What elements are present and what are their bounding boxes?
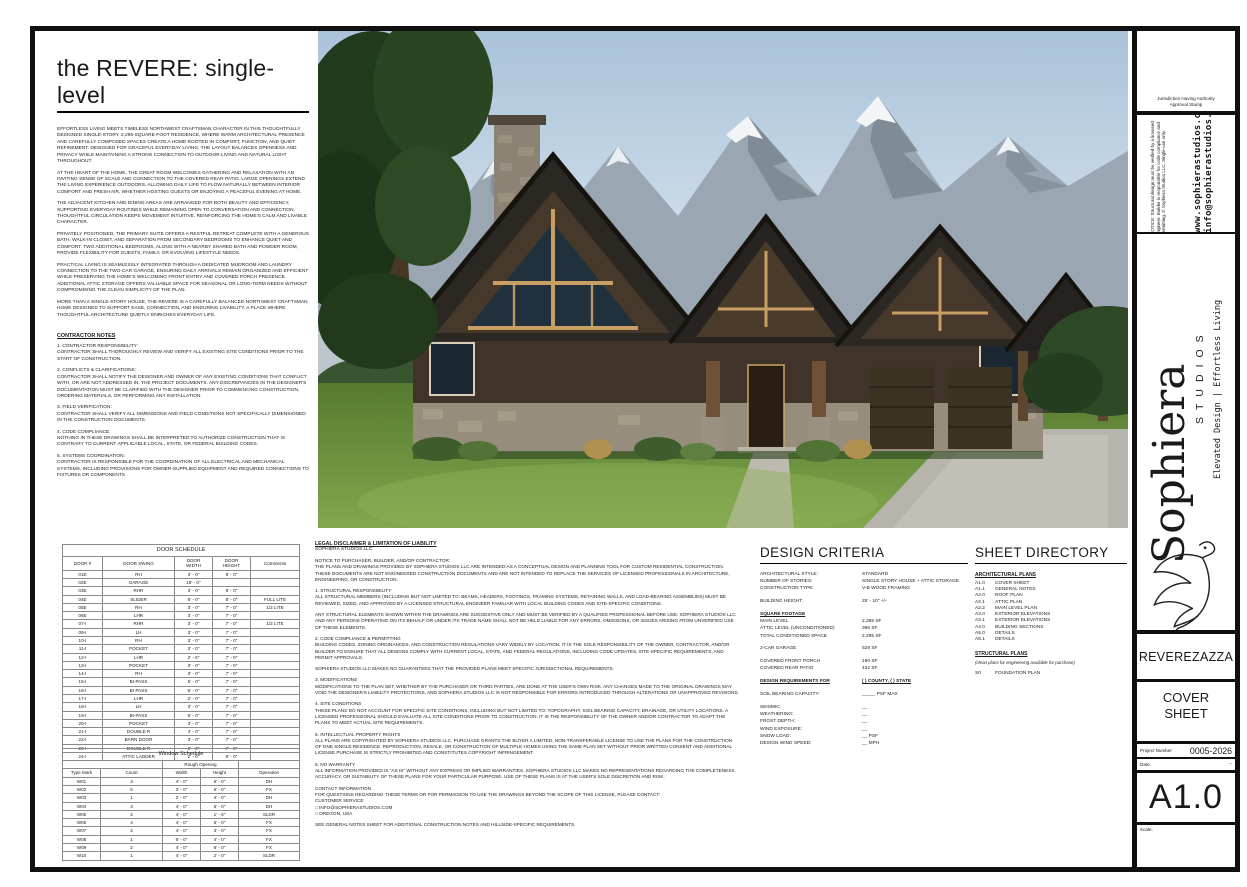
table-cell: 15-I — [63, 678, 103, 686]
sheet-label: DETAILS — [995, 637, 1015, 643]
table-cell: DOUBLE R — [103, 728, 175, 736]
criteria-row: WIND EXPOSURE:__ — [760, 727, 968, 733]
table-cell — [251, 686, 300, 694]
sophiera-bird-logo — [1141, 536, 1233, 632]
architectural-plans-heading: ARCHITECTURAL PLANS — [975, 572, 1127, 578]
criteria-row — [760, 641, 968, 646]
table-cell: 1 — [101, 794, 163, 802]
paragraph: CONTACT INFORMATION FOR QUESTIONS REGARD… — [315, 786, 739, 817]
criteria-value: V-B WOOD FRAMING — [862, 586, 968, 592]
criteria-label: COVERED REAR PATIO — [760, 666, 862, 672]
criteria-row — [760, 674, 968, 679]
criteria-label: CONSTRUCTION TYPE: — [760, 586, 862, 592]
table-cell: 2' - 0" — [175, 694, 213, 702]
table-cell: SLDR — [239, 852, 300, 860]
table-row: 04ESLIDER8' - 0"8' - 0"FULL LITE — [63, 595, 300, 603]
table-cell: 7' - 0" — [213, 603, 251, 611]
table-cell: 3' - 0" — [175, 703, 213, 711]
table-cell: 2' - 0" — [201, 852, 239, 860]
table-cell — [251, 570, 300, 578]
table-cell: 09-I — [63, 628, 103, 636]
table-cell: 4' - 0" — [163, 802, 201, 810]
approval-stamp-box: Jurisdiction Having Authority Approval S… — [1137, 31, 1235, 115]
table-cell: W01 — [63, 777, 101, 785]
project-number-label: Project Number — [1140, 748, 1172, 753]
table-cell: 8' - 0" — [175, 595, 213, 603]
table-cell — [251, 612, 300, 620]
table-cell: SLIDER — [103, 595, 175, 603]
website-url: www.sophierastudios.com — [1193, 115, 1204, 233]
table-cell — [251, 587, 300, 595]
table-row: 18-ILH3' - 0"7' - 0" — [63, 703, 300, 711]
column-header: DOOR WIDTH — [175, 557, 213, 571]
criteria-row: SOIL BEARING CAPACITY:_____ PSF MAX — [760, 692, 968, 698]
table-row: 06ELHR3' - 0"7' - 0" — [63, 612, 300, 620]
window-schedule-title: Window Schedule — [63, 749, 300, 761]
table-cell: 4' - 0" — [163, 827, 201, 835]
scale-label: Scale: — [1140, 827, 1153, 832]
table-cell: 8' - 0" — [213, 587, 251, 595]
table-cell: 22-I — [63, 736, 103, 744]
column-header: Type Mark — [63, 769, 101, 777]
table-cell: 7' - 0" — [213, 736, 251, 744]
criteria-row: CONSTRUCTION TYPE:V-B WOOD FRAMING — [760, 586, 968, 592]
criteria-row — [760, 594, 968, 599]
table-cell: 01E — [63, 570, 103, 578]
table-cell: DH — [239, 794, 300, 802]
notice-box: NOTICE: Structural design must be verifi… — [1137, 115, 1235, 234]
criteria-label — [760, 699, 862, 704]
table-cell — [251, 694, 300, 702]
paragraph: 5. INTELLECTUAL PROPERTY RIGHTS ALL PLAN… — [315, 732, 739, 757]
criteria-row: ARCHITECTURAL STYLE:STANDARD — [760, 572, 968, 578]
table-cell: 6' - 0" — [175, 686, 213, 694]
criteria-value: __ MPH — [862, 741, 968, 747]
table-cell: 1 — [101, 835, 163, 843]
table-cell: 19-I — [63, 711, 103, 719]
paragraph: SEE GENERAL NOTES SHEET FOR ADDITIONAL C… — [315, 822, 739, 828]
criteria-label — [760, 606, 862, 611]
table-row: 13-IPOCKET3' - 0"7' - 0" — [63, 661, 300, 669]
criteria-value: __ — [862, 712, 968, 718]
design-criteria-rows: ARCHITECTURAL STYLE:STANDARDNUMBER OF ST… — [760, 572, 968, 747]
criteria-label: DESIGN REQUIREMENTS FOR — [760, 679, 862, 685]
date-label: Date: — [1140, 762, 1151, 767]
criteria-label: ARCHITECTURAL STYLE: — [760, 572, 862, 578]
table-row: 17-ILHR2' - 0"7' - 0" — [63, 694, 300, 702]
paragraph: 3. MODIFICATIONS MODIFICATIONS TO THE PL… — [315, 677, 739, 696]
table-cell: FULL LITE — [251, 595, 300, 603]
blank-header — [63, 761, 163, 769]
table-cell: 7' - 0" — [213, 728, 251, 736]
table-cell: 04E — [63, 595, 103, 603]
criteria-label: ATTIC LEVEL (UNCONDITIONED) — [760, 626, 862, 632]
criteria-label: 2-CAR GARAGE — [760, 646, 862, 652]
table-cell: 3' - 0" — [175, 612, 213, 620]
drawing-area: the REVERE: single-level EFFORTLESS LIVI… — [35, 31, 1132, 867]
table-cell: 4' - 0" — [163, 819, 201, 827]
table-cell: 18' - 0" — [175, 579, 213, 587]
criteria-row — [760, 606, 968, 611]
table-cell: 7' - 0" — [213, 653, 251, 661]
table-cell: 7' - 0" — [213, 711, 251, 719]
table-cell: 2 — [101, 844, 163, 852]
sheet-title-box: COVER SHEET — [1137, 682, 1235, 744]
sheet-number-box: A1.0 — [1137, 773, 1235, 825]
criteria-label: SEISMIC: — [760, 705, 862, 711]
criteria-label: SNOW LOAD: — [760, 734, 862, 740]
column-header: Operation — [239, 769, 300, 777]
table-cell: 3' - 0" — [175, 661, 213, 669]
table-cell: 8' - 0" — [213, 595, 251, 603]
criteria-row: SEISMIC:__ — [760, 705, 968, 711]
table-cell: 02E — [63, 579, 103, 587]
table-cell: 3' - 0" — [163, 786, 201, 794]
table-cell: LHR — [103, 612, 175, 620]
criteria-label: DESIGN WIND SPEED: — [760, 741, 862, 747]
legal-paragraphs: NOTICE TO PURCHASER, BUILDER, AND/OR CON… — [315, 558, 739, 828]
table-cell: 2 — [101, 810, 163, 818]
table-cell: 4' - 0" — [163, 844, 201, 852]
window-schedule: Window Schedule Rough Opening Type Mark … — [62, 748, 299, 861]
criteria-value — [862, 612, 968, 618]
table-cell: FX — [239, 835, 300, 843]
criteria-value — [862, 641, 968, 646]
table-cell: 3' - 0" — [175, 736, 213, 744]
table-cell — [251, 670, 300, 678]
table-cell: 5' - 0" — [175, 711, 213, 719]
table-cell: LH — [103, 703, 175, 711]
table-cell: 4' - 0" — [163, 852, 201, 860]
paragraph: 2. CONFLICTS & CLARIFICATIONS: CONTRACTO… — [57, 368, 309, 400]
criteria-value: STANDARD — [862, 572, 968, 578]
table-cell: DH — [239, 777, 300, 785]
brand-name: Sophiera — [1148, 364, 1198, 564]
legal-subheading: SOPHIERA STUDIOS LLC — [315, 547, 739, 552]
table-cell: 5' - 0" — [175, 678, 213, 686]
table-row: 14-IRH3' - 0"7' - 0" — [63, 670, 300, 678]
paragraph: AT THE HEART OF THE HOME, THE GREAT ROOM… — [57, 171, 309, 197]
table-cell: 4' - 0" — [163, 777, 201, 785]
table-row: 20-IPOCKET3' - 0"7' - 0" — [63, 719, 300, 727]
approval-stamp-label: Jurisdiction Having Authority Approval S… — [1137, 96, 1235, 108]
cover-sheet-page: the REVERE: single-level EFFORTLESS LIVI… — [0, 0, 1247, 887]
table-cell: 2 — [101, 827, 163, 835]
column-header: Comments — [251, 557, 300, 571]
table-row: W0312' - 0"4' - 0"DH — [63, 794, 300, 802]
table-cell: W10 — [63, 852, 101, 860]
table-cell: 3' - 0" — [175, 587, 213, 595]
table-cell — [213, 579, 251, 587]
table-cell — [251, 736, 300, 744]
sheet-directory-item: S0FOUNDATION PLAN — [975, 671, 1127, 677]
project-number-row: Project Number 0005-2026 — [1137, 744, 1235, 759]
criteria-row — [760, 687, 968, 692]
table-cell: POCKET — [103, 645, 175, 653]
table-row: 11-IPOCKET3' - 0"7' - 0" — [63, 645, 300, 653]
table-cell: RHR — [103, 587, 175, 595]
table-cell: 7' - 0" — [213, 686, 251, 694]
criteria-value: 25' - 10" +/- — [862, 599, 968, 605]
table-row: W0134' - 0"5' - 0"DH — [63, 777, 300, 785]
criteria-row: COVERED FRONT PORCH190 SF — [760, 659, 968, 665]
table-cell: 14-I — [63, 670, 103, 678]
front-door — [748, 365, 784, 449]
criteria-value — [862, 674, 968, 679]
table-cell: 06E — [63, 612, 103, 620]
criteria-row: FROST DEPTH:__ — [760, 719, 968, 725]
sheet-directory: SHEET DIRECTORY ARCHITECTURAL PLANS A1.0… — [975, 545, 1127, 678]
table-row: 10-IRH3' - 0"7' - 0" — [63, 637, 300, 645]
criteria-row: BUILDING HEIGHT:25' - 10" +/- — [760, 599, 968, 605]
paragraph: MORE THAN A SINGLE-STORY HOUSE, THE REVE… — [57, 300, 309, 319]
contractor-notes: 1. CONTRACTOR RESPONSIBILITY: CONTRACTOR… — [57, 344, 309, 480]
paragraph: PRIVATELY POSITIONED, THE PRIMARY SUITE … — [57, 232, 309, 258]
table-cell: 4' - 0" — [201, 794, 239, 802]
sheet-directory-item: A5.1DETAILS — [975, 637, 1127, 643]
criteria-label — [760, 654, 862, 659]
brand-studios-label: STUDIOS — [1194, 274, 1208, 424]
table-cell: 4 — [101, 819, 163, 827]
table-row: W0924' - 0"6' - 0"FX — [63, 844, 300, 852]
table-cell: FX — [239, 786, 300, 794]
table-cell: RHR — [103, 620, 175, 628]
table-cell — [251, 719, 300, 727]
criteria-row: DESIGN REQUIREMENTS FOR( ) COUNTY, ( ) S… — [760, 679, 968, 685]
criteria-value: 190 SF — [862, 659, 968, 665]
criteria-row: MAIN LEVEL2,295 SF — [760, 619, 968, 625]
column-header: Height — [201, 769, 239, 777]
plan-title: the REVERE: single-level — [57, 55, 309, 113]
table-cell: W02 — [63, 786, 101, 794]
paragraph: ANY STRUCTURAL ELEMENTS SHOWN WITHIN THE… — [315, 612, 739, 631]
table-cell: 7' - 0" — [213, 694, 251, 702]
table-cell: 20-I — [63, 719, 103, 727]
paragraph: PRACTICAL LIVING IS SEAMLESSLY INTEGRATE… — [57, 263, 309, 295]
column-header: Width — [163, 769, 201, 777]
date-value: -- — [1151, 762, 1232, 767]
table-row: W0816' - 0"4' - 0"FX — [63, 835, 300, 843]
criteria-value: 528 SF — [862, 646, 968, 652]
table-row: 03ERHR3' - 0"8' - 0" — [63, 587, 300, 595]
table-cell: W08 — [63, 835, 101, 843]
table-cell: 5' - 0" — [201, 786, 239, 794]
criteria-value — [862, 606, 968, 611]
table-cell: 8' - 0" — [213, 570, 251, 578]
table-cell — [251, 703, 300, 711]
table-cell: SLDR — [239, 810, 300, 818]
criteria-value: __ — [862, 705, 968, 711]
architectural-plans-list: A1.0COVER SHEETA1.1GENERAL NOTESA2.0ROOF… — [975, 581, 1127, 643]
garage-door — [948, 367, 1012, 449]
paragraph: 4. SITE CONDITIONS THESE PLANS DO NOT AC… — [315, 701, 739, 726]
criteria-label — [760, 674, 862, 679]
criteria-row: WEATHERING:__ — [760, 712, 968, 718]
project-name: REVEREZAZZA — [1139, 650, 1233, 664]
brand-tagline: Elevated Design | Effortless Living — [1213, 289, 1225, 479]
email-address: info@sophierastudios.com — [1204, 115, 1215, 233]
table-cell: 1/2 LITE — [251, 620, 300, 628]
criteria-value — [862, 699, 968, 704]
table-cell: 03E — [63, 587, 103, 595]
criteria-row: COVERED REAR PATIO432 SF — [760, 666, 968, 672]
project-number-value: 0005-2026 — [1172, 746, 1232, 756]
paragraph: 1. CONTRACTOR RESPONSIBILITY: CONTRACTOR… — [57, 344, 309, 363]
structural-plans-list: S0FOUNDATION PLAN — [975, 671, 1127, 677]
criteria-value: 395 SF — [862, 626, 968, 632]
table-cell: 7' - 0" — [213, 612, 251, 620]
table-row: W0644' - 0"6' - 0"FX — [63, 819, 300, 827]
criteria-row: TOTAL CONDITIONED SPACE2,295 SF — [760, 634, 968, 640]
table-cell: RH — [103, 570, 175, 578]
table-cell — [251, 637, 300, 645]
criteria-row — [760, 654, 968, 659]
criteria-label: WEATHERING: — [760, 712, 862, 718]
table-cell: 7' - 0" — [213, 661, 251, 669]
table-cell: 3' - 0" — [175, 670, 213, 678]
brand-box: Sophiera STUDIOS Elevated Design | Effor… — [1137, 234, 1235, 634]
table-cell: 13-I — [63, 661, 103, 669]
criteria-value — [862, 594, 968, 599]
table-cell: 3' - 0" — [175, 628, 213, 636]
paragraph: EFFORTLESS LIVING MEETS TIMELESS NORTHWE… — [57, 127, 309, 166]
criteria-value: 432 SF — [862, 666, 968, 672]
table-cell — [251, 645, 300, 653]
criteria-value: __ — [862, 727, 968, 733]
paragraph: 4. CODE COMPLIANCE: NOTHING IN THESE DRA… — [57, 430, 309, 449]
table-cell: BI-PASS — [103, 711, 175, 719]
table-row: 12-ILHR2' - 6"7' - 0" — [63, 653, 300, 661]
table-cell: 3' - 0" — [201, 827, 239, 835]
table-cell: LHR — [103, 653, 175, 661]
table-cell: 1' - 6" — [201, 810, 239, 818]
criteria-value: __ — [862, 719, 968, 725]
table-cell: 3 — [101, 802, 163, 810]
criteria-row — [760, 699, 968, 704]
criteria-row: DESIGN WIND SPEED:__ MPH — [760, 741, 968, 747]
paragraph: NOTICE TO PURCHASER, BUILDER, AND/OR CON… — [315, 558, 739, 583]
table-cell: 6' - 0" — [163, 835, 201, 843]
column-header: Count — [101, 769, 163, 777]
table-row: 09-ILH3' - 0"7' - 0" — [63, 628, 300, 636]
table-cell: LH — [103, 628, 175, 636]
table-row: W0434' - 0"6' - 0"DH — [63, 802, 300, 810]
table-cell: W06 — [63, 819, 101, 827]
structural-plans-note: (clean plans for engineering available f… — [975, 660, 1127, 665]
table-cell: BARN DOOR — [103, 736, 175, 744]
column-header: DOOR # — [63, 557, 103, 571]
table-cell: 3' - 0" — [175, 620, 213, 628]
garage-door — [870, 367, 934, 449]
criteria-value — [862, 687, 968, 692]
table-cell — [251, 728, 300, 736]
table-cell: GARAGE — [103, 579, 175, 587]
table-cell: 5' - 0" — [201, 777, 239, 785]
table-cell: 4' - 0" — [201, 835, 239, 843]
table-cell: LHR — [103, 694, 175, 702]
table-cell: 4' - 0" — [175, 728, 213, 736]
table-cell: W07 — [63, 827, 101, 835]
table-cell: 11-I — [63, 645, 103, 653]
table-row: 05ERH3' - 0"7' - 0"1/2 LITE — [63, 603, 300, 611]
blank-header — [239, 761, 300, 769]
table-cell — [251, 711, 300, 719]
sheet-code: S0 — [975, 671, 995, 677]
table-cell: 1 — [101, 852, 163, 860]
table-row: 02EGARAGE18' - 0" — [63, 579, 300, 587]
table-cell: 12-I — [63, 653, 103, 661]
paragraph: 6. NO WARRANTY ALL INFORMATION PROVIDED … — [315, 762, 739, 781]
table-cell: 6' - 0" — [201, 844, 239, 852]
table-cell: 3' - 0" — [175, 719, 213, 727]
date-row: Date: -- — [1137, 759, 1235, 773]
sheet-border-frame: the REVERE: single-level EFFORTLESS LIVI… — [30, 26, 1240, 872]
paragraph: 5. SYSTEMS COORDINATION: CONTRACTOR IS R… — [57, 454, 309, 480]
table-row: W0724' - 0"3' - 0"FX — [63, 827, 300, 835]
table-cell: BI-PASS — [103, 686, 175, 694]
intro-paragraphs: EFFORTLESS LIVING MEETS TIMELESS NORTHWE… — [57, 127, 309, 319]
table-cell: 6' - 0" — [201, 819, 239, 827]
sheet-label: FOUNDATION PLAN — [995, 671, 1040, 677]
table-cell: 07-I — [63, 620, 103, 628]
table-cell: FX — [239, 827, 300, 835]
structural-plans-heading: STRUCTURAL PLANS — [975, 651, 1127, 657]
table-cell: W03 — [63, 794, 101, 802]
table-cell: 7' - 0" — [213, 719, 251, 727]
table-row: W1014' - 0"2' - 0"SLDR — [63, 852, 300, 860]
table-cell: 2' - 6" — [175, 653, 213, 661]
criteria-label — [760, 687, 862, 692]
title-block-strip: Jurisdiction Having Authority Approval S… — [1132, 31, 1235, 867]
table-cell: 3' - 0" — [175, 645, 213, 653]
table-row: 16-IBI-PASS6' - 0"7' - 0" — [63, 686, 300, 694]
house-rendering-svg — [318, 31, 1128, 528]
table-cell: 7' - 0" — [213, 678, 251, 686]
criteria-label — [760, 594, 862, 599]
criteria-row: ATTIC LEVEL (UNCONDITIONED)395 SF — [760, 626, 968, 632]
group-header: Rough Opening — [163, 761, 239, 769]
table-cell: 3' - 0" — [175, 570, 213, 578]
table-cell: FX — [239, 844, 300, 852]
table-cell: 3' - 0" — [175, 603, 213, 611]
column-header: DOOR SWING — [103, 557, 175, 571]
table-cell: POCKET — [103, 661, 175, 669]
sheet-directory-title: SHEET DIRECTORY — [975, 545, 1127, 564]
contractor-notes-heading: CONTRACTOR NOTES — [57, 333, 309, 339]
door-schedule-title: DOOR SCHEDULE — [63, 545, 300, 557]
table-cell: W09 — [63, 844, 101, 852]
criteria-label: FROST DEPTH: — [760, 719, 862, 725]
table-cell — [251, 628, 300, 636]
criteria-label: MAIN LEVEL — [760, 619, 862, 625]
table-cell: 05E — [63, 603, 103, 611]
table-cell: 10-I — [63, 637, 103, 645]
intro-column: the REVERE: single-level EFFORTLESS LIVI… — [57, 55, 309, 485]
legal-disclaimer: LEGAL DISCLAIMER & LIMITATION OF LIABILI… — [315, 541, 739, 833]
paragraph: THE ADJACENT KITCHEN AND DINING AREAS AR… — [57, 201, 309, 227]
table-cell — [251, 678, 300, 686]
criteria-value: _____ PSF MAX — [862, 692, 968, 698]
criteria-value — [862, 654, 968, 659]
table-cell: 7' - 0" — [213, 637, 251, 645]
criteria-value: 2,295 SF — [862, 634, 968, 640]
project-name-box: REVEREZAZZA — [1137, 634, 1235, 682]
criteria-label: NUMBER OF STORIES: — [760, 579, 862, 585]
criteria-label — [760, 641, 862, 646]
design-criteria-title: DESIGN CRITERIA — [760, 545, 968, 564]
table-cell: 18-I — [63, 703, 103, 711]
sheet-number: A1.0 — [1149, 778, 1223, 817]
